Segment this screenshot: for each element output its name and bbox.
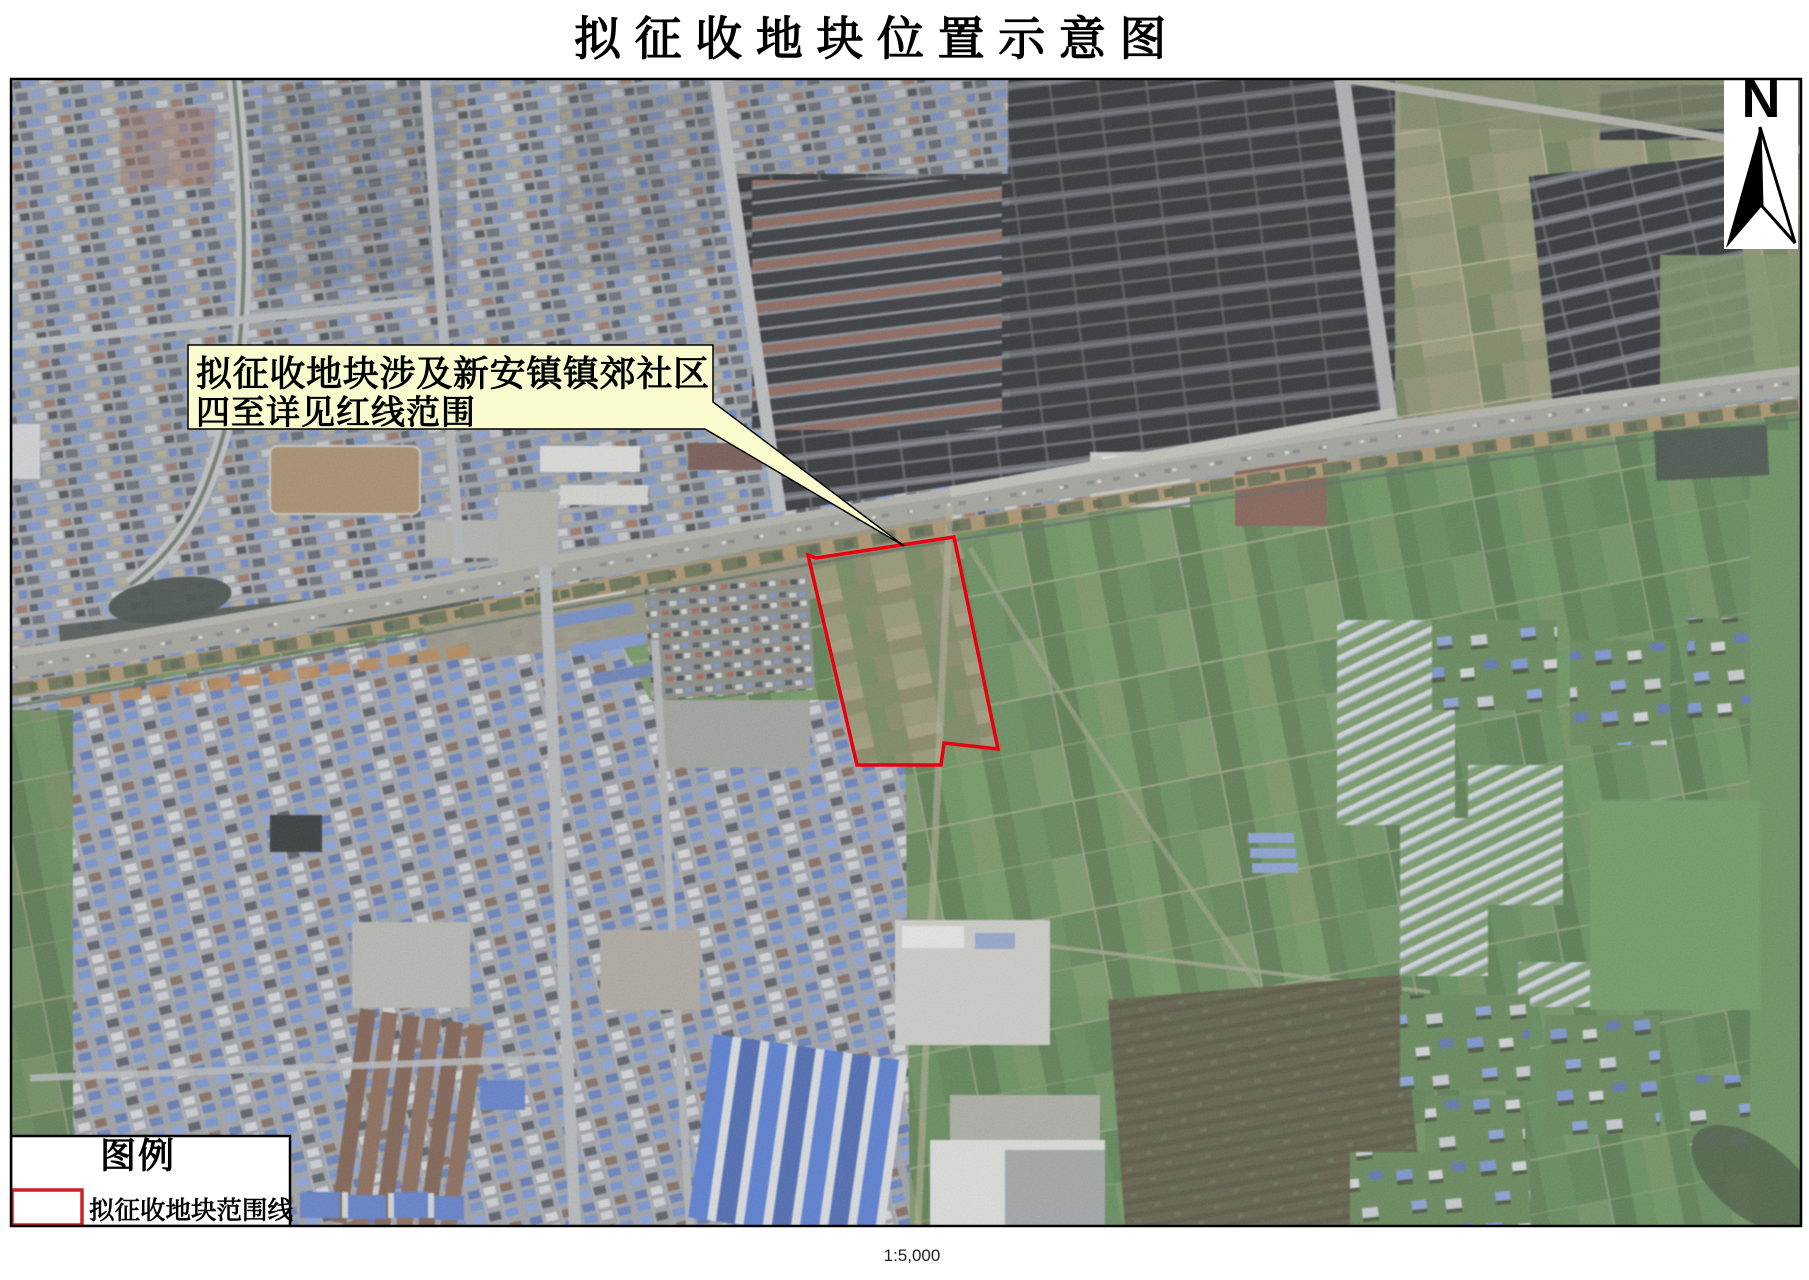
svg-text:1:5,000: 1:5,000 <box>884 1246 941 1265</box>
